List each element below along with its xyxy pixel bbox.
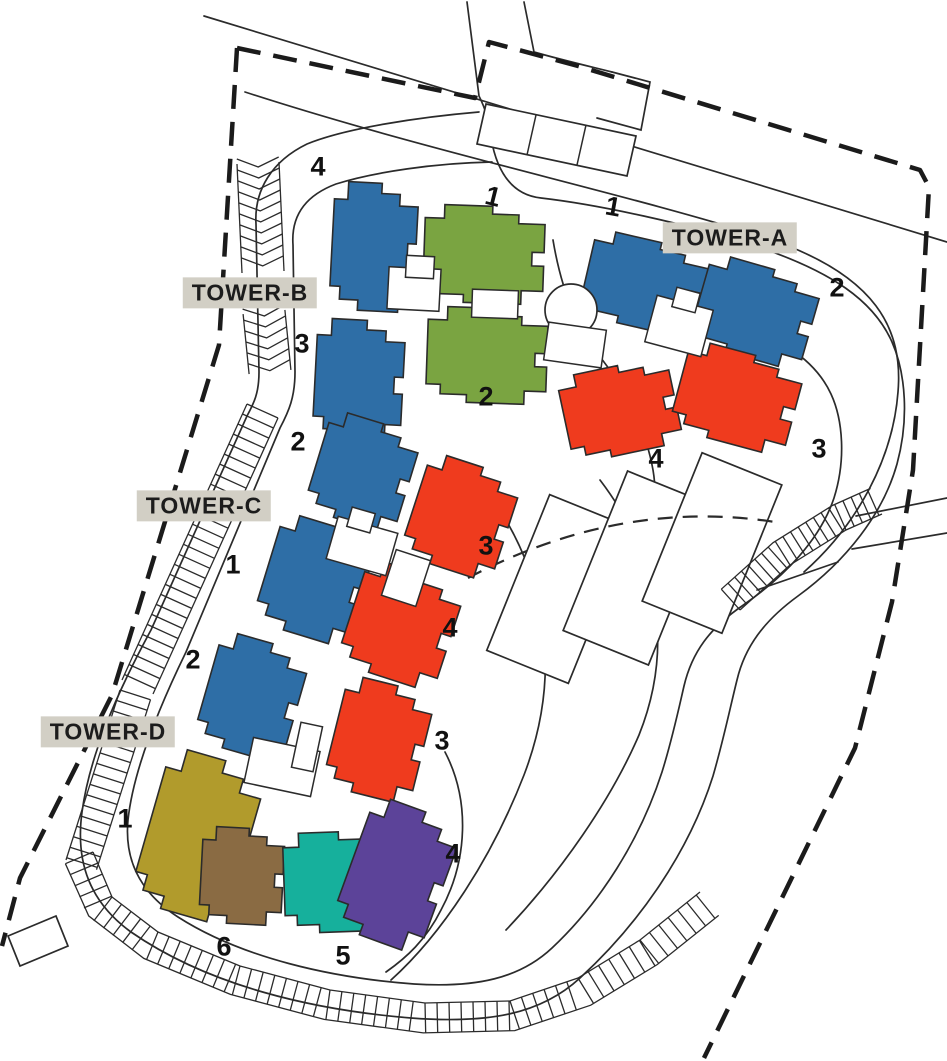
unit-number: 2 [829,275,844,302]
unit-number: 5 [335,943,350,970]
building-core [405,255,434,278]
building-core [472,289,519,319]
parking-strip-chevron-lower [243,305,291,374]
unit-number: 3 [811,436,826,463]
site-plan-canvas [0,0,947,1061]
future-buildings [468,453,782,684]
tower-b-label: TOWER-B [183,277,317,308]
guard-booth [8,916,68,966]
building-red-3-lower [322,674,437,806]
unit-number: 1 [225,552,240,579]
entrance-pad [597,72,650,130]
unit-number: 2 [478,384,493,411]
unit-number: 2 [290,429,305,456]
building-core [544,322,607,368]
parking-strip-chevron-upper [237,157,284,273]
unit-number: 4 [442,615,457,642]
unit-number: 3 [294,331,309,358]
building-brown-6 [199,826,286,926]
building-tower-a-3 [668,338,806,457]
tower-a-label: TOWER-A [663,222,797,253]
unit-number: 6 [216,934,231,961]
building-tower-a-4 [556,355,684,464]
unit-number: 1 [117,806,132,833]
unit-number: 2 [185,647,200,674]
unit-number: 4 [648,446,663,473]
unit-number: 3 [478,533,493,560]
unit-number: 3 [434,728,449,755]
unit-number: 4 [445,841,460,868]
tower-c-label: TOWER-C [137,490,271,521]
tower-d-label: TOWER-D [41,716,175,747]
site-plan-page: { "site_plan": { "towers": [ {"label": "… [0,0,947,1061]
road-exit-right-1 [856,498,947,516]
unit-number: 4 [310,154,325,181]
